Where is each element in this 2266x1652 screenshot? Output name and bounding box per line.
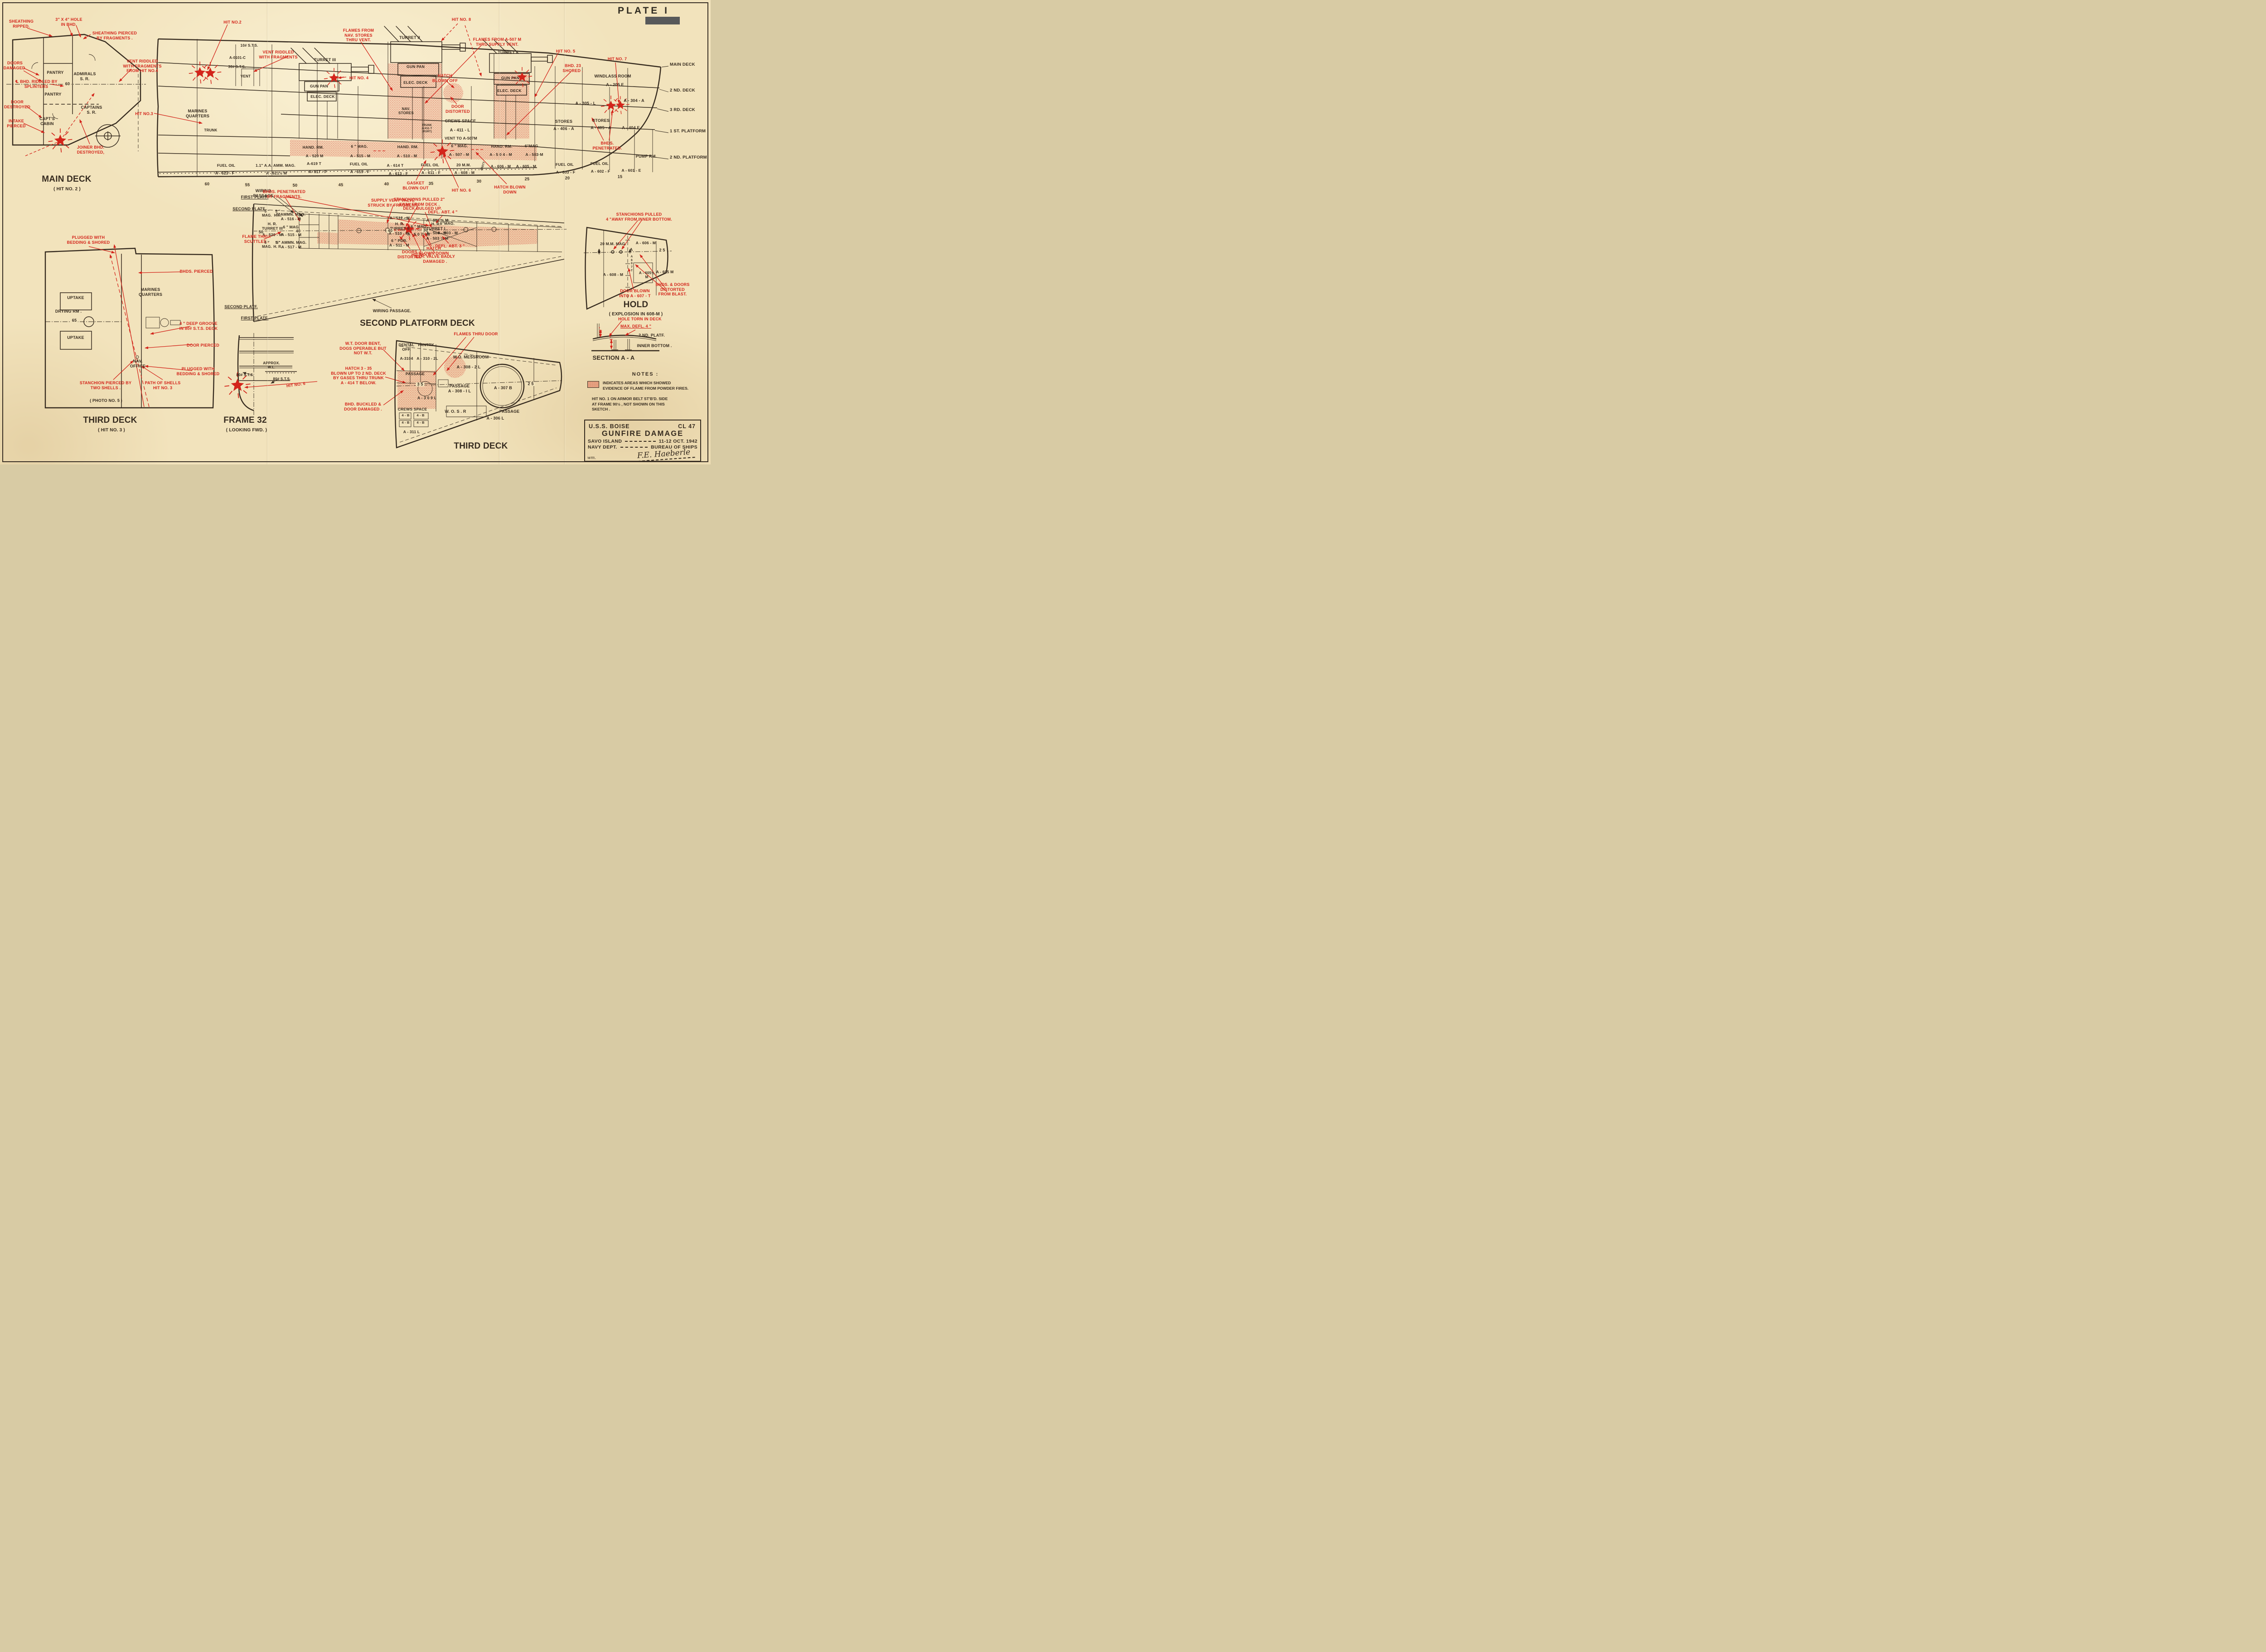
uptake-upper: UPTAKE (67, 295, 84, 300)
agency-name: NAVY DEPT. (588, 444, 617, 450)
marines-quarters-profile: MARINES QUARTERS (186, 109, 209, 118)
paper-crease-3 (564, 0, 566, 464)
a-611-f: A - 611 - F (421, 170, 441, 175)
a-510-m: A - 510 - M (397, 154, 417, 158)
a-601-e: A - 601 - E (622, 168, 641, 173)
door-destroyed: DOOR DESTROYED (4, 100, 30, 109)
sheathing-pierced: SHEATHING PIERCED BY FRAGMENTS . (92, 31, 137, 40)
vent-riddled-hit4: VENT RIDDLED WITH FRAGMENTS FROM HIT NO.… (123, 59, 161, 73)
bhds-pierced: BHDS. PIERCED (179, 269, 213, 274)
bunk-4b-4: 4 - B (416, 421, 424, 425)
gun-pan-t1: GUN PAN (501, 76, 519, 80)
a-605-m-hold: A - 605 M (656, 270, 674, 274)
hit-no-3: HIT NO.3 (135, 111, 153, 116)
a-311-l: A - 311 L (403, 430, 420, 434)
ammn-mag-517: 5" AMMN. MAG. A - 517 - M (276, 240, 307, 249)
fuel-oil-623: FUEL OIL (217, 163, 235, 168)
a-623-f: A - 623 - F (215, 171, 235, 175)
fuel-oil-611: FUEL OIL (421, 163, 439, 167)
captains-sr: CAPTAINS S. R. (81, 105, 102, 115)
nav-stores: NAV. STORES (398, 107, 414, 116)
deck-3rd: 3 RD. DECK (670, 107, 695, 112)
frame-65: 65 (71, 319, 78, 323)
capts-cabin: CAPT'S CABIN (39, 116, 55, 126)
a-411-l: A - 411 - L (450, 128, 470, 133)
redaction-bar (645, 17, 680, 24)
a-608-m-hold: A - 608 - M (603, 272, 623, 277)
hand-rm-520: HAND. RM. (303, 145, 324, 150)
hit-no-4: HIT NO. 4 (349, 76, 368, 81)
a-310-2l: A - 310 - 2L (416, 356, 438, 361)
fuel-oil-615: FUEL OIL (350, 162, 368, 166)
fr-25-hold: 2 5 (658, 248, 666, 252)
hit-no-8: HIT NO. 8 (452, 17, 471, 22)
door-pierced: DOOR PIERCED (187, 343, 219, 348)
wt-door-bent: W.T. DOOR BENT, DOGS OPERABLE BUT NOT W.… (339, 341, 386, 356)
pantry-3rd: PANTRY (418, 343, 434, 347)
joiner-bhd-destroyed: JOINER BHD. DESTROYED, (77, 145, 105, 155)
door-blown-into: DOOR BLOWN INTO A - 607 - T (619, 289, 650, 298)
a-304-a: A - 304 - A (624, 98, 644, 103)
hr-turret-iii: H. R. TURRET III (262, 222, 283, 231)
a-605-half-m: A - 605½ M (639, 271, 654, 280)
gun-pan-t2: GUN PAN (407, 64, 425, 69)
fr-60: 60 (203, 182, 211, 186)
title-block: U.S.S. BOISE CL 47 GUNFIRE DAMAGE SAVO I… (584, 420, 701, 462)
hit-no-7: HIT NO. 7 (608, 57, 627, 62)
hand-rm-510: HAND. RM. (397, 145, 419, 149)
fr-15: 15 (616, 175, 624, 179)
elec-deck-t2: ELEC. DECK (403, 80, 427, 85)
wo-messroom: W.O. MESSROOM (453, 355, 489, 360)
a-0101-c: A-0101-C (229, 56, 246, 60)
hand-rm-504: HAND. RM. (491, 144, 513, 149)
fr-50: 50 (291, 184, 299, 188)
first-platf-lower: FIRST PLATF. (241, 316, 269, 321)
inner-bottom: INNER BOTTOM . (637, 343, 672, 348)
photo-no-5: ( PHOTO NO. 5 ) (90, 398, 122, 403)
stanchions-4in: STANCHIONS PULLED 4 "AWAY FROM INNER BOT… (606, 212, 672, 222)
flames-a507m: FLAMES FROM A-507 M THRU SUPPLY VENT. (473, 37, 521, 47)
hull-number: CL 47 (678, 423, 696, 430)
hit1-note: HIT NO. 1 ON ARMOR BELT ST'B'D. SIDE AT … (592, 396, 703, 412)
battle-date: 11-12 OCT. 1942 (659, 439, 697, 444)
nav-office: NAV. OFFICE (130, 359, 145, 368)
a-504-m: A - 5 0 4 - M (489, 152, 512, 157)
fr-30: 30 (475, 179, 483, 184)
trunk-a411t: TRUNK A-411-T (PORT) (421, 124, 432, 134)
fr-25-3rd: 2 5 (526, 382, 535, 386)
deck-main: MAIN DECK (670, 62, 695, 67)
section-a-a-title: SECTION A - A (593, 354, 635, 361)
damage-plate-sheet: .k{stroke:#362b1f;fill:none;stroke-width… (0, 0, 711, 464)
trunk-profile: TRUNK (204, 128, 218, 132)
a-512-m: A - 512 - M (390, 216, 410, 220)
elec-deck-t1: ELEC. DECK (497, 88, 521, 93)
mm-20-mag-hold: 20 M.M. MAG. (600, 242, 626, 246)
a-510-m-plan: A - 510 - M (389, 231, 409, 236)
hit-no-2: HIT NO.2 (223, 20, 242, 25)
a-503-m-plan: A - 503 - M (438, 231, 458, 235)
hatch-3-35: HATCH 3 - 35 BLOWN UP TO 2 ND. DECK BY G… (331, 366, 386, 385)
third-deck-subtitle: ( HIT NO. 3 ) (98, 428, 125, 433)
passage-fwd-3rd: PASSAGE (406, 372, 425, 376)
a-306-l: A - 306 L (487, 416, 504, 421)
second-platf-lower: SECOND PLATF. (224, 304, 257, 309)
flame-legend-text: INDICATES AREAS WHICH SHOWED EVIDENCE OF… (603, 381, 688, 391)
vent-riddled-frag: VENT RIDDLED WITH FRAGMENTS (259, 50, 297, 59)
a-608-m: A - 608 - M (455, 170, 475, 175)
max-defl-4: MAX. DEFL. 4 " (620, 324, 651, 329)
a-605-m-profile: A - 605 - M (516, 164, 536, 169)
hit-no-5: HIT NO. 5 (556, 49, 575, 54)
wiring-passage-lower: WIRING PASSAGE. (373, 309, 412, 314)
gasket-blown-out: GASKET BLOWN OUT (402, 181, 428, 190)
dental-off: DENTAL OFF. (398, 343, 414, 352)
stanchion-pierced: STANCHION PIERCED BY TWO SHELLS . (80, 381, 131, 390)
platf-2nd-section: 2 ND. PLATF. (639, 333, 665, 338)
a-515-m-plan: A - 515 - M (281, 232, 301, 237)
sts-80-left: 80# S.T.S. (237, 373, 254, 377)
a-603-f: A - 603 - F (556, 170, 576, 174)
a-405-a: A - 405 - A (591, 126, 611, 130)
a-617-f: A- 617 - F (309, 169, 327, 174)
fr-40: 40 (383, 182, 390, 186)
stanchions-2in: STANCHIONS PULLED 2" AWAY FROM DECK . (393, 197, 445, 207)
hole-torn-in-deck: HOLE TORN IN DECK (618, 317, 662, 322)
flames-nav-stores: FLAMES FROM NAV. STORES THRU VENT. (343, 28, 374, 43)
section-mark-a-right: A (630, 247, 633, 252)
crews-space-3rd: CREWS SPACE (398, 407, 427, 411)
a-619-t: A-619 T (307, 161, 321, 166)
uptake-lower: UPTAKE (67, 335, 84, 340)
mag-503: 6"MAG. (525, 144, 539, 148)
a-3104: A-3104 (400, 356, 413, 361)
fr-25: 25 (523, 177, 531, 181)
passage-a308: PASSAGE A - 308 - I L (448, 384, 471, 393)
a-307-b: A - 307 B (494, 386, 512, 391)
main-deck-subtitle: ( HIT NO. 2 ) (53, 187, 81, 192)
a-515-m: A - 515 - M (350, 154, 370, 158)
bhds-penetrated-stbd: BHDS. PENETRATED. (592, 141, 622, 150)
a-507-m: A - 507 - M (449, 152, 469, 157)
defl-abt-4: DEFL. ABT. 4 " (428, 210, 457, 215)
a-520m: A - 520 M (306, 154, 324, 158)
bunk-4b-2: 4 - B (416, 414, 424, 418)
a-205e: A - 205 E (606, 82, 624, 87)
a-404-e: A - 404 E (622, 126, 639, 130)
ammn-mag-516: 5"AMMN. MAG. A - 516 - M (276, 212, 306, 221)
fr-55: 55 (244, 183, 251, 187)
plate-number: PLATE I (618, 5, 669, 17)
turret-i: TURRET I (498, 50, 517, 55)
section-mark-a-left: A (598, 248, 601, 253)
bhd-23-shored: BHD. 23 SHORED . (562, 63, 583, 73)
mag-515: 6 " MAG. (351, 144, 368, 149)
third-deck-title: THIRD DECK (83, 415, 137, 425)
windlass-room: WINDLASS ROOM (594, 74, 631, 79)
second-platf-upper: SECOND PLATF. (232, 207, 266, 212)
dim-2in: 2 " (598, 327, 602, 332)
mm-20-608: 20 M.M. (456, 163, 471, 167)
cl-bhd-riddled: ℄ BHD. RIDDLED BY SPLINTERS (15, 79, 57, 89)
turret-iii: TURRET III (314, 58, 336, 63)
ship-name: U.S.S. BOISE (589, 423, 630, 430)
gun-pan-t3: GUN PAN (310, 84, 328, 88)
sts-10: 10# S.T.S. (241, 43, 258, 48)
frame-60-plan: 60 (64, 82, 71, 86)
a-503-quarter-m: A - 503 ¼ M (426, 236, 449, 241)
wosr: W. O. S . R (445, 409, 466, 414)
flames-thru-door: FLAMES THRU DOOR (454, 332, 498, 337)
plugged-bedding-1: PLUGGED WITH BEDDING & SHORED (67, 235, 110, 245)
bunk-4b-1: 4 - B (402, 414, 409, 418)
leader-dashes-2 (620, 447, 648, 448)
a-309-l: A - 3 0 9 L (417, 396, 436, 400)
paper-crease-2 (499, 0, 500, 464)
pdr-6-a511: 6 " PDR. A - 511 - M (389, 238, 409, 247)
a-613-f: A - 613 - F (389, 171, 408, 176)
draftsman-initials: wm. (587, 456, 596, 460)
sheathing-ripped: SHEATHING RIPPED. (9, 19, 34, 29)
mag-6-503-plan: 6"MAG. (440, 221, 455, 226)
sts-30: 30# S.T.S. (228, 65, 246, 69)
fr-35-3rd: 3 5 (416, 382, 424, 386)
fr-45: 45 (337, 183, 344, 187)
drying-rm: DRYING RM . (55, 309, 82, 314)
path-of-shells: PATH OF SHELLS HIT NO. 3 (145, 381, 181, 390)
deck-2nd-platform: 2 ND. PLATFORM (670, 155, 707, 160)
a-607-t-hold: A 6 0 7 T (631, 255, 633, 272)
fuel-oil-602: FUEL OIL (591, 161, 609, 166)
a-614-t: A - 614 T (387, 163, 404, 168)
main-deck-plan-linework (6, 34, 146, 151)
hit-no-6-profile: HIT NO. 6 (452, 188, 471, 193)
elec-deck-t3: ELEC. DECK (310, 94, 334, 99)
leader-dashes-1 (625, 441, 655, 442)
bhds-penetrated-frag: BHDS. PENETRATED BY FRAGMENTS. (263, 189, 305, 199)
exh-valve-damaged: EXH. VALVE BADLY DAMAGED . (415, 254, 455, 264)
vent-room: VENT (241, 74, 251, 78)
drawing-title: GUNFIRE DAMAGE (585, 430, 700, 438)
deck-1st-platform: 1 ST. PLATFORM (670, 129, 706, 134)
frame-32-subtitle: ( LOOKING FWD. ) (226, 428, 267, 433)
sts-80-right: 80# S.T.S. (273, 377, 291, 381)
groove-4in: 4 " DEEP GROOVE IN 80# S.T.S. DECK (179, 321, 218, 331)
paper-crease-1 (266, 0, 268, 464)
dim-4in: 4 " (609, 336, 613, 341)
second-platform-deck-title: SECOND PLATFORM DECK (360, 319, 475, 328)
hatch-blown-off: HATCH BLOWN OFF (432, 73, 458, 83)
doors-damaged: DOORS DAMAGED. (4, 61, 27, 70)
deck-2nd: 2 ND. DECK (670, 88, 695, 93)
hold-title: HOLD (624, 300, 649, 310)
hole-3x4-in-bhd: 3" X 4" HOLE IN BHD. (55, 17, 82, 27)
stores-405: STORES (592, 118, 610, 123)
pantry-upper: PANTRY (47, 70, 63, 75)
a-621-m: A - 621½ M (266, 171, 287, 175)
a-602-f: A - 602 - F (591, 169, 610, 174)
a-308-2l: A - 308 - 2 L (457, 365, 481, 370)
turret-ii: TURRET II (399, 35, 420, 40)
crews-space-profile: CREWS SPACE (445, 119, 476, 124)
bunk-4b-3: 4 - B (402, 421, 409, 425)
frame-32-title: FRAME 32 (223, 415, 267, 425)
aa-amm-mag-621: 1.1" A.A. AMM. MAG. (256, 163, 295, 168)
main-deck-title: MAIN DECK (42, 174, 91, 184)
notes-block: NOTES : INDICATES AREAS WHICH SHOWED EVI… (587, 372, 703, 412)
notes-heading: NOTES : (587, 372, 703, 377)
vent-to-a507m: VENT TO A-507M (445, 136, 477, 140)
main-deck-plan-annotations (24, 25, 131, 156)
mag-507: 6 " MAG. (451, 144, 468, 148)
admirals-sr: ADMIRALS S. R. (73, 72, 96, 81)
intake-pierced: INTAKE PIERCED (7, 119, 25, 128)
a-606-m-hold: A - 606 - M (636, 241, 656, 245)
a-615-f: A - 615 - F (350, 169, 370, 174)
a-305-l: A - 305 - L (576, 101, 596, 106)
bhd-buckled: BHD. BUCKLED & DOOR DAMAGED . (344, 402, 382, 411)
flame-legend-swatch (587, 381, 599, 388)
bhds-doors-distorted: BHDS. & DOORS DISTORTED FROM BLAST. (655, 282, 689, 297)
plugged-bedding-2: PLUGGED WITH BEDDING & SHORED (177, 367, 220, 376)
a-606-m-profile: A - 606 - M (491, 164, 511, 169)
door-distorted-profile: DOOR DISTORTED (445, 104, 470, 114)
approx-wl: APPROX. W.L. (263, 361, 280, 370)
a-503-m: A - 503·M (525, 152, 543, 157)
passage-aft-3rd: PASSAGE (499, 409, 520, 414)
pump-rm: PUMP RM. (636, 154, 657, 159)
pantry-lower: PANTRY (44, 92, 61, 97)
battle-name: SAVO ISLAND (588, 439, 622, 444)
marines-quarters-plan: MARINES QUARTERS (139, 287, 162, 297)
